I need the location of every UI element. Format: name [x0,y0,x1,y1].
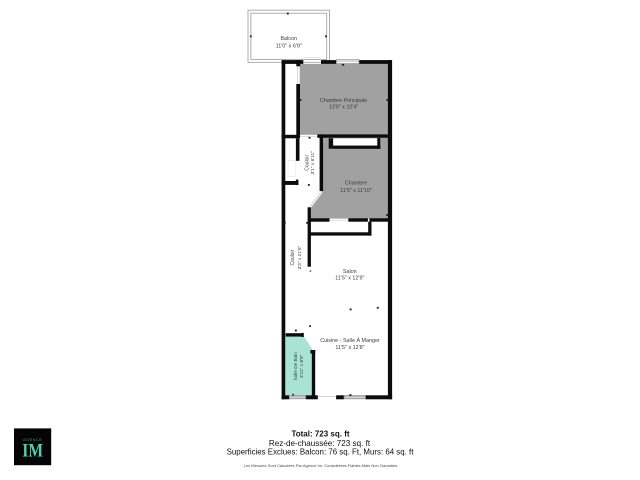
svg-text:3'11" x 8'9": 3'11" x 8'9" [299,354,305,378]
svg-text:3'3" x 21'5": 3'3" x 21'5" [297,245,303,269]
svg-text:11'5" x 12'9": 11'5" x 12'9" [335,276,364,282]
svg-text:Les Mesures Sont Calculées Par: Les Mesures Sont Calculées Par Agence Im… [244,463,399,468]
svg-text:IM: IM [22,440,43,461]
svg-text:Salon: Salon [343,269,357,275]
svg-text:Cuisine - Salle À Manger: Cuisine - Salle À Manger [320,337,380,344]
svg-text:11'5" x 11'10": 11'5" x 11'10" [340,188,372,194]
svg-text:Chambre: Chambre [345,180,367,186]
svg-text:Superficies Exclues: Balcon: 7: Superficies Exclues: Balcon: 76 sq. Ft, … [227,447,415,456]
svg-text:Salle De Bain: Salle De Bain [293,352,298,381]
svg-text:11'0" x 6'9": 11'0" x 6'9" [276,43,302,49]
svg-text:3'1" x 6'11": 3'1" x 6'11" [310,151,316,175]
svg-text:11'5" x 12'8": 11'5" x 12'8" [335,345,364,351]
svg-text:Couloir: Couloir [290,249,296,265]
svg-text:Total: 723 sq. ft: Total: 723 sq. ft [291,430,349,439]
svg-text:Couloir: Couloir [305,155,311,171]
svg-text:13'0" x 10'4": 13'0" x 10'4" [329,104,359,110]
svg-text:Chambre Principale: Chambre Principale [320,98,367,104]
svg-text:Balcon: Balcon [280,36,296,42]
